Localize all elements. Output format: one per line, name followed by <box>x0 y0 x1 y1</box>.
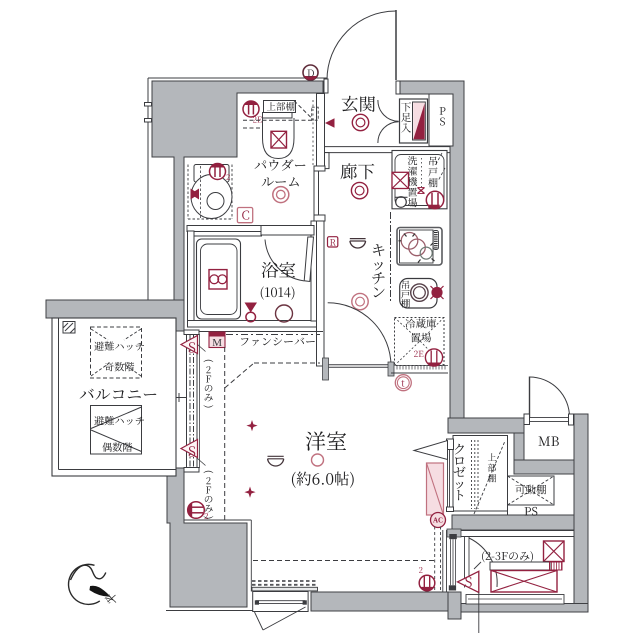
svg-text:AC: AC <box>433 517 443 525</box>
svg-text:M: M <box>212 337 222 349</box>
